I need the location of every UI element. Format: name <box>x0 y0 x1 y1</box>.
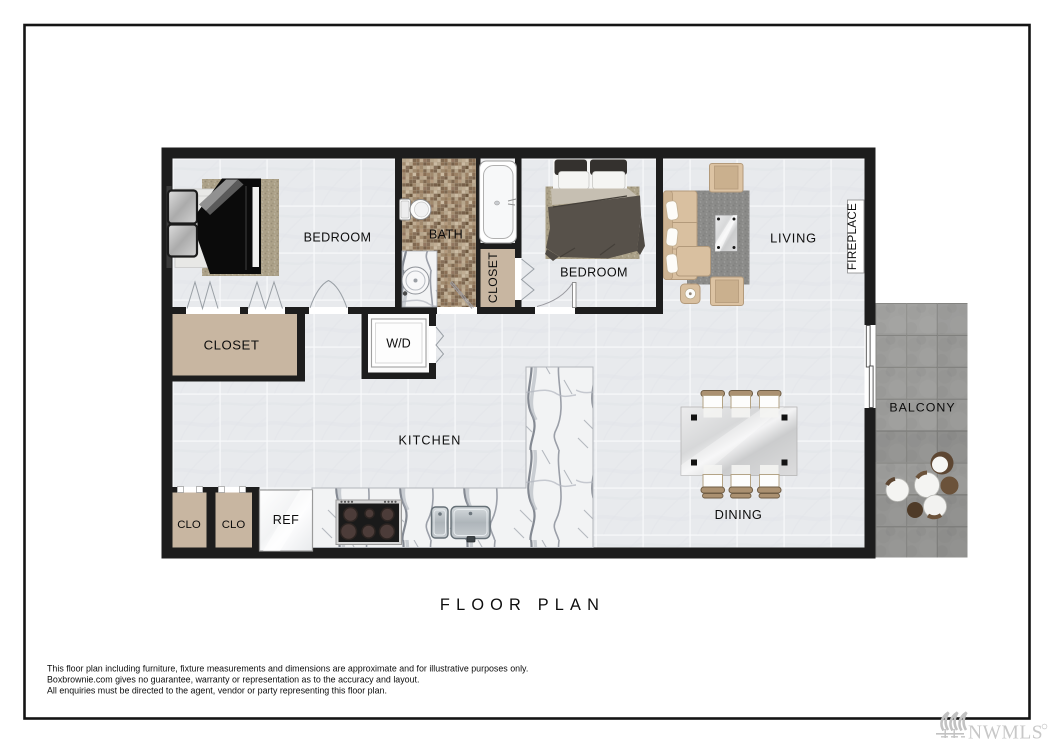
svg-text:CLOSET: CLOSET <box>486 252 500 303</box>
svg-text:CLOSET: CLOSET <box>204 338 260 353</box>
svg-text:W/D: W/D <box>386 337 410 351</box>
svg-text:LIVING: LIVING <box>770 231 817 246</box>
svg-text:BALCONY: BALCONY <box>889 401 955 415</box>
svg-text:REF: REF <box>273 513 299 527</box>
svg-text:BATH: BATH <box>429 228 463 242</box>
svg-text:BEDROOM: BEDROOM <box>304 231 372 245</box>
svg-text:All enquiries must be directed: All enquiries must be directed to the ag… <box>47 686 387 696</box>
svg-text:DINING: DINING <box>715 507 763 522</box>
svg-text:CLO: CLO <box>222 519 246 531</box>
svg-text:This floor plan including furn: This floor plan including furniture, fix… <box>47 664 528 674</box>
svg-text:KITCHEN: KITCHEN <box>399 434 462 448</box>
svg-text:Boxbrownie.com gives no guaran: Boxbrownie.com gives no guarantee, warra… <box>47 675 419 685</box>
svg-text:NWMLS: NWMLS <box>968 723 1043 744</box>
svg-text:CLO: CLO <box>177 519 201 531</box>
svg-text:FIREPLACE: FIREPLACE <box>846 203 859 270</box>
svg-text:BEDROOM: BEDROOM <box>560 266 628 280</box>
svg-text:FLOOR PLAN: FLOOR PLAN <box>440 596 605 614</box>
